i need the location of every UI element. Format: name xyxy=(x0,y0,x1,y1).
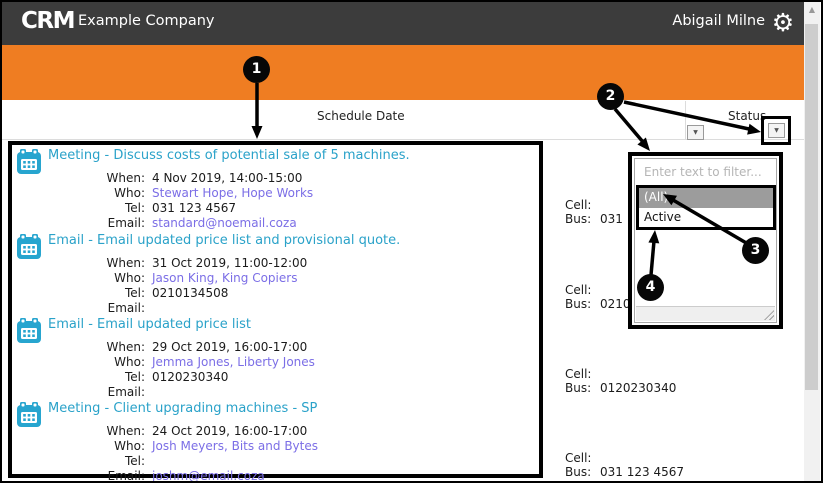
tel-label: Tel: xyxy=(48,370,145,385)
appointment-entry: Email - Email updated price list and pro… xyxy=(16,233,531,317)
popup-footer xyxy=(636,306,775,321)
page-title: Warnings xyxy=(72,106,173,128)
bus-label: Bus: xyxy=(565,213,595,227)
bus-label: Bus: xyxy=(565,466,595,480)
cell-label: Cell: xyxy=(565,199,595,213)
who-label: Who: xyxy=(48,355,145,370)
when-value: 31 Oct 2019, 11:00-12:00 xyxy=(152,256,307,271)
company-name: Example Company xyxy=(78,13,215,29)
contact-columns: Cell: Bus:031 123 4567 xyxy=(565,452,795,480)
tel-value: 0120230340 xyxy=(152,370,228,385)
who-label: Who: xyxy=(48,186,145,201)
calendar-icon xyxy=(16,318,42,344)
calendar-icon xyxy=(16,149,42,175)
schedule-date-column-header: Schedule Date xyxy=(317,109,405,123)
appointment-title[interactable]: Meeting - Client upgrading machines - SP xyxy=(48,401,317,416)
scrollbar-up-icon[interactable]: ▲ xyxy=(804,2,820,18)
calendar-icon xyxy=(16,402,42,428)
column-divider xyxy=(685,101,686,140)
appointment-details: When:4 Nov 2019, 14:00-15:00 Who:Stewart… xyxy=(48,171,313,231)
tel-value: 031 123 4567 xyxy=(152,201,236,216)
scrollbar-thumb[interactable] xyxy=(805,24,818,390)
header-divider xyxy=(2,139,804,140)
email-label: Email: xyxy=(48,301,145,316)
email-label: Email: xyxy=(48,216,145,231)
app-header: CRM Example Company Abigail Milne ⚙ xyxy=(0,0,804,45)
email-link[interactable]: standard@noemail.coza xyxy=(152,216,297,231)
callout-4-badge: 4 xyxy=(637,274,664,301)
tel-label: Tel: xyxy=(48,286,145,301)
email-label: Email: xyxy=(48,385,145,400)
appointment-entry: Meeting - Client upgrading machines - SP… xyxy=(16,401,531,483)
callout-3-badge: 3 xyxy=(742,237,769,264)
calendar-icon xyxy=(16,234,42,260)
appointment-title[interactable]: Email - Email updated price list xyxy=(48,317,251,332)
who-link[interactable]: Jason King, King Copiers xyxy=(152,271,297,286)
when-label: When: xyxy=(48,256,145,271)
who-label: Who: xyxy=(48,439,145,454)
appointment-details: When:24 Oct 2019, 16:00-17:00 Who:Josh M… xyxy=(48,424,318,483)
appointments-list-box: Meeting - Discuss costs of potential sal… xyxy=(8,141,543,478)
appointment-entry: Email - Email updated price list When:29… xyxy=(16,317,531,401)
warnings-toolbar: Warnings ↻ xyxy=(0,45,804,100)
callout-1-badge: 1 xyxy=(243,56,270,83)
appointment-details: When:29 Oct 2019, 16:00-17:00 Who:Jemma … xyxy=(48,340,315,400)
gear-icon[interactable]: ⚙ xyxy=(768,6,798,39)
filter-option-all[interactable]: (All) xyxy=(639,188,773,208)
cell-label: Cell: xyxy=(565,284,595,298)
when-value: 4 Nov 2019, 14:00-15:00 xyxy=(152,171,302,186)
when-label: When: xyxy=(48,171,145,186)
crm-warnings-page: CRM Example Company Abigail Milne ⚙ Warn… xyxy=(0,0,823,483)
cell-label: Cell: xyxy=(565,368,595,382)
bus-label: Bus: xyxy=(565,382,595,396)
filter-options-list: (All) Active xyxy=(636,185,776,230)
when-value: 29 Oct 2019, 16:00-17:00 xyxy=(152,340,307,355)
appointment-title[interactable]: Email - Email updated price list and pro… xyxy=(48,233,400,248)
email-link[interactable]: joshm@email.coza xyxy=(152,469,265,483)
filter-text-input[interactable] xyxy=(637,161,774,183)
tel-value: 0210134508 xyxy=(152,286,228,301)
user-name[interactable]: Abigail Milne xyxy=(640,13,765,29)
email-label: Email: xyxy=(48,469,145,483)
appointment-details: When:31 Oct 2019, 11:00-12:00 Who:Jason … xyxy=(48,256,307,316)
resize-grip[interactable] xyxy=(764,310,774,320)
callout-2-badge: 2 xyxy=(597,83,624,110)
who-link[interactable]: Jemma Jones, Liberty Jones xyxy=(152,355,315,370)
filter-option-active[interactable]: Active xyxy=(639,208,773,227)
warning-icon xyxy=(16,101,54,135)
who-link[interactable]: Stewart Hope, Hope Works xyxy=(152,186,313,201)
tel-label: Tel: xyxy=(48,454,145,469)
when-value: 24 Oct 2019, 16:00-17:00 xyxy=(152,424,307,439)
tel-label: Tel: xyxy=(48,201,145,216)
scrollbar[interactable]: ▲ xyxy=(804,2,820,481)
who-label: Who: xyxy=(48,271,145,286)
status-filter-button[interactable]: ▼ xyxy=(768,123,785,138)
when-label: When: xyxy=(48,424,145,439)
appointment-entry: Meeting - Discuss costs of potential sal… xyxy=(16,148,531,232)
crm-logo: CRM xyxy=(21,8,74,34)
who-link[interactable]: Josh Meyers, Bits and Bytes xyxy=(152,439,318,454)
schedule-date-filter-button[interactable]: ▼ xyxy=(687,125,704,140)
appointment-title[interactable]: Meeting - Discuss costs of potential sal… xyxy=(48,148,410,163)
when-label: When: xyxy=(48,340,145,355)
cell-label: Cell: xyxy=(565,452,595,466)
bus-value: 031 123 4567 xyxy=(600,466,684,480)
bus-label: Bus: xyxy=(565,298,595,312)
bus-value: 0120230340 xyxy=(600,382,676,396)
contact-columns: Cell: Bus:0120230340 xyxy=(565,368,795,396)
